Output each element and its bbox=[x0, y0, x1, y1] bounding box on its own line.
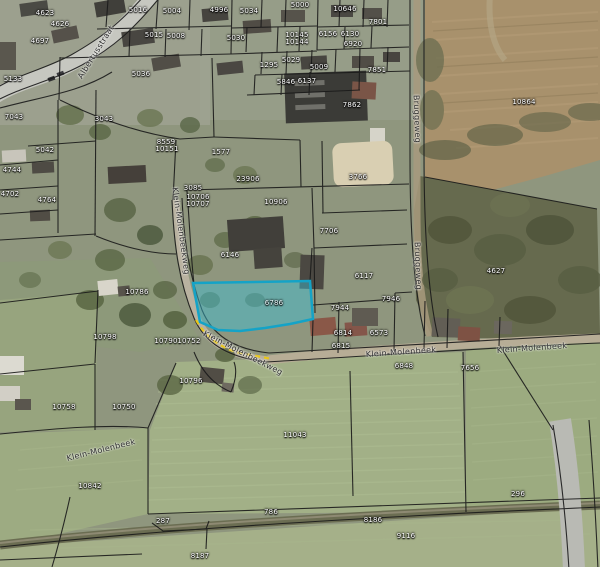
parcel-label: 3043 bbox=[95, 115, 114, 123]
parcel-label: 10786 bbox=[125, 288, 148, 296]
parcel-label: 3085 bbox=[184, 184, 203, 192]
parcel-label: 10706 bbox=[186, 193, 209, 201]
parcel-label: 5042 bbox=[36, 146, 55, 154]
parcel-label: 5008 bbox=[167, 32, 186, 40]
parcel-label: 4744 bbox=[3, 166, 22, 174]
parcel-label: 10151 bbox=[155, 145, 178, 153]
parcel-label: 4764 bbox=[38, 196, 57, 204]
parcel-label: 7706 bbox=[320, 227, 339, 235]
parcel-label: 7043 bbox=[5, 113, 24, 121]
parcel-label: 10798 bbox=[93, 333, 116, 341]
parcel-label: 10750 bbox=[112, 403, 135, 411]
parcel-label: 11043 bbox=[283, 431, 306, 439]
parcel-label: 287 bbox=[156, 517, 170, 525]
parcel-label-layer: 4623462646975133501650044996503450001064… bbox=[0, 0, 600, 567]
parcel-label: 4697 bbox=[31, 37, 50, 45]
parcel-label: 10790 bbox=[154, 337, 177, 345]
parcel-label: 10758 bbox=[52, 403, 75, 411]
parcel-label: 6117 bbox=[355, 272, 374, 280]
parcel-label: 10646 bbox=[333, 5, 356, 13]
parcel-label: 5133 bbox=[4, 75, 23, 83]
parcel-label: 8187 bbox=[191, 552, 210, 560]
parcel-label: 8186 bbox=[364, 516, 383, 524]
parcel-label: 6146 bbox=[221, 251, 240, 259]
parcel-label: 5034 bbox=[240, 7, 259, 15]
parcel-label: 5016 bbox=[129, 6, 148, 14]
parcel-label: 23906 bbox=[236, 175, 259, 183]
parcel-label: 10707 bbox=[186, 200, 209, 208]
parcel-label: 6814 bbox=[334, 329, 353, 337]
parcel-label: 786 bbox=[264, 508, 278, 516]
parcel-label: 6137 bbox=[298, 77, 317, 85]
map-viewport[interactable]: AlbertusstraatKlein-MolenbeekwegKlein-Mo… bbox=[0, 0, 600, 567]
parcel-label: 4627 bbox=[487, 267, 506, 275]
parcel-label: 9116 bbox=[397, 532, 416, 540]
parcel-label: 6815 bbox=[332, 342, 351, 350]
parcel-label: 6573 bbox=[370, 329, 389, 337]
parcel-label: 7944 bbox=[331, 304, 350, 312]
parcel-label: 6130 bbox=[341, 30, 360, 38]
parcel-label: 3766 bbox=[349, 173, 368, 181]
parcel-label: 7656 bbox=[461, 364, 480, 372]
parcel-label: 7862 bbox=[343, 101, 362, 109]
parcel-label: 10796 bbox=[179, 377, 202, 385]
parcel-label: 10906 bbox=[264, 198, 287, 206]
parcel-label: 7801 bbox=[369, 18, 388, 26]
parcel-label: 5004 bbox=[163, 7, 182, 15]
parcel-label: 10144 bbox=[285, 38, 308, 46]
parcel-label: 5015 bbox=[145, 31, 164, 39]
parcel-label: 4996 bbox=[210, 6, 229, 14]
parcel-label: 5029 bbox=[282, 56, 301, 64]
parcel-label: 6848 bbox=[395, 362, 414, 370]
parcel-label: 4626 bbox=[51, 20, 70, 28]
parcel-label: 7851 bbox=[368, 66, 387, 74]
parcel-label: 10842 bbox=[78, 482, 101, 490]
parcel-label: 6156 bbox=[319, 30, 338, 38]
parcel-label: 4623 bbox=[36, 9, 55, 17]
parcel-label: 5036 bbox=[132, 70, 151, 78]
parcel-label: 5846 bbox=[277, 78, 296, 86]
parcel-label: 1295 bbox=[260, 61, 279, 69]
parcel-label: 4702 bbox=[1, 190, 20, 198]
parcel-label: 10145 bbox=[285, 31, 308, 39]
parcel-label: 5000 bbox=[291, 1, 310, 9]
parcel-label: 10752 bbox=[177, 337, 200, 345]
parcel-label: 5009 bbox=[310, 63, 329, 71]
parcel-label: 6920 bbox=[344, 40, 363, 48]
parcel-label: 7946 bbox=[382, 295, 401, 303]
parcel-label: 8559 bbox=[157, 138, 176, 146]
parcel-label: 1577 bbox=[212, 148, 231, 156]
parcel-label: 296 bbox=[511, 490, 525, 498]
highlighted-parcel-label: 6786 bbox=[265, 299, 284, 307]
parcel-label: 10864 bbox=[512, 98, 535, 106]
parcel-label: 5030 bbox=[227, 34, 246, 42]
